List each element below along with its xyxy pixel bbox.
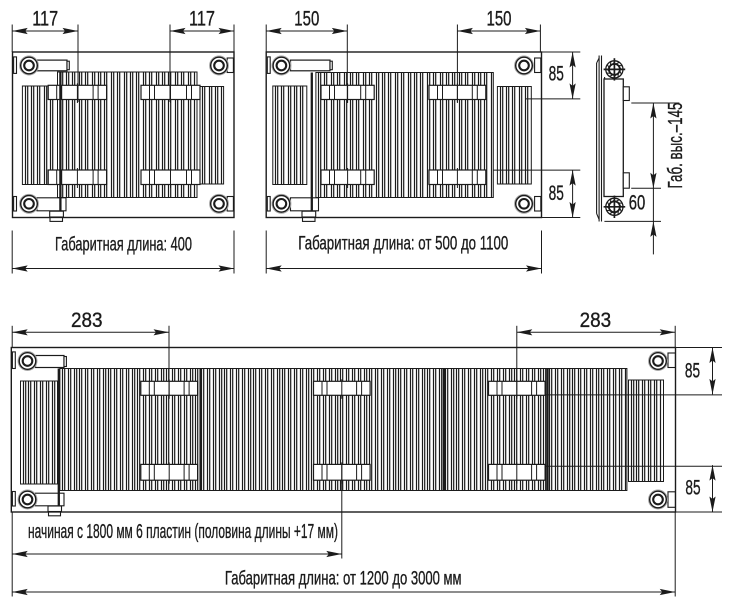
svg-text:117: 117 bbox=[32, 7, 58, 30]
svg-text:начиная с 1800 мм 6 пластин (п: начиная с 1800 мм 6 пластин (половина дл… bbox=[28, 521, 338, 543]
svg-text:283: 283 bbox=[71, 309, 103, 332]
svg-text:85: 85 bbox=[549, 182, 564, 205]
svg-text:85: 85 bbox=[685, 360, 700, 383]
svg-text:Габ. выс.–145: Габ. выс.–145 bbox=[664, 103, 687, 189]
svg-text:283: 283 bbox=[580, 309, 612, 332]
svg-text:85: 85 bbox=[549, 63, 564, 86]
svg-text:117: 117 bbox=[189, 7, 215, 30]
svg-text:Габаритная длина: от 1200 до 3: Габаритная длина: от 1200 до 3000 мм bbox=[225, 568, 462, 590]
svg-text:Габаритная длина: от 500 до 11: Габаритная длина: от 500 до 1100 bbox=[298, 233, 508, 255]
svg-text:150: 150 bbox=[294, 7, 319, 30]
svg-text:60: 60 bbox=[629, 192, 646, 215]
svg-text:150: 150 bbox=[487, 7, 512, 30]
svg-text:85: 85 bbox=[685, 477, 700, 500]
svg-text:Габаритная длина: 400: Габаритная длина: 400 bbox=[55, 233, 192, 255]
